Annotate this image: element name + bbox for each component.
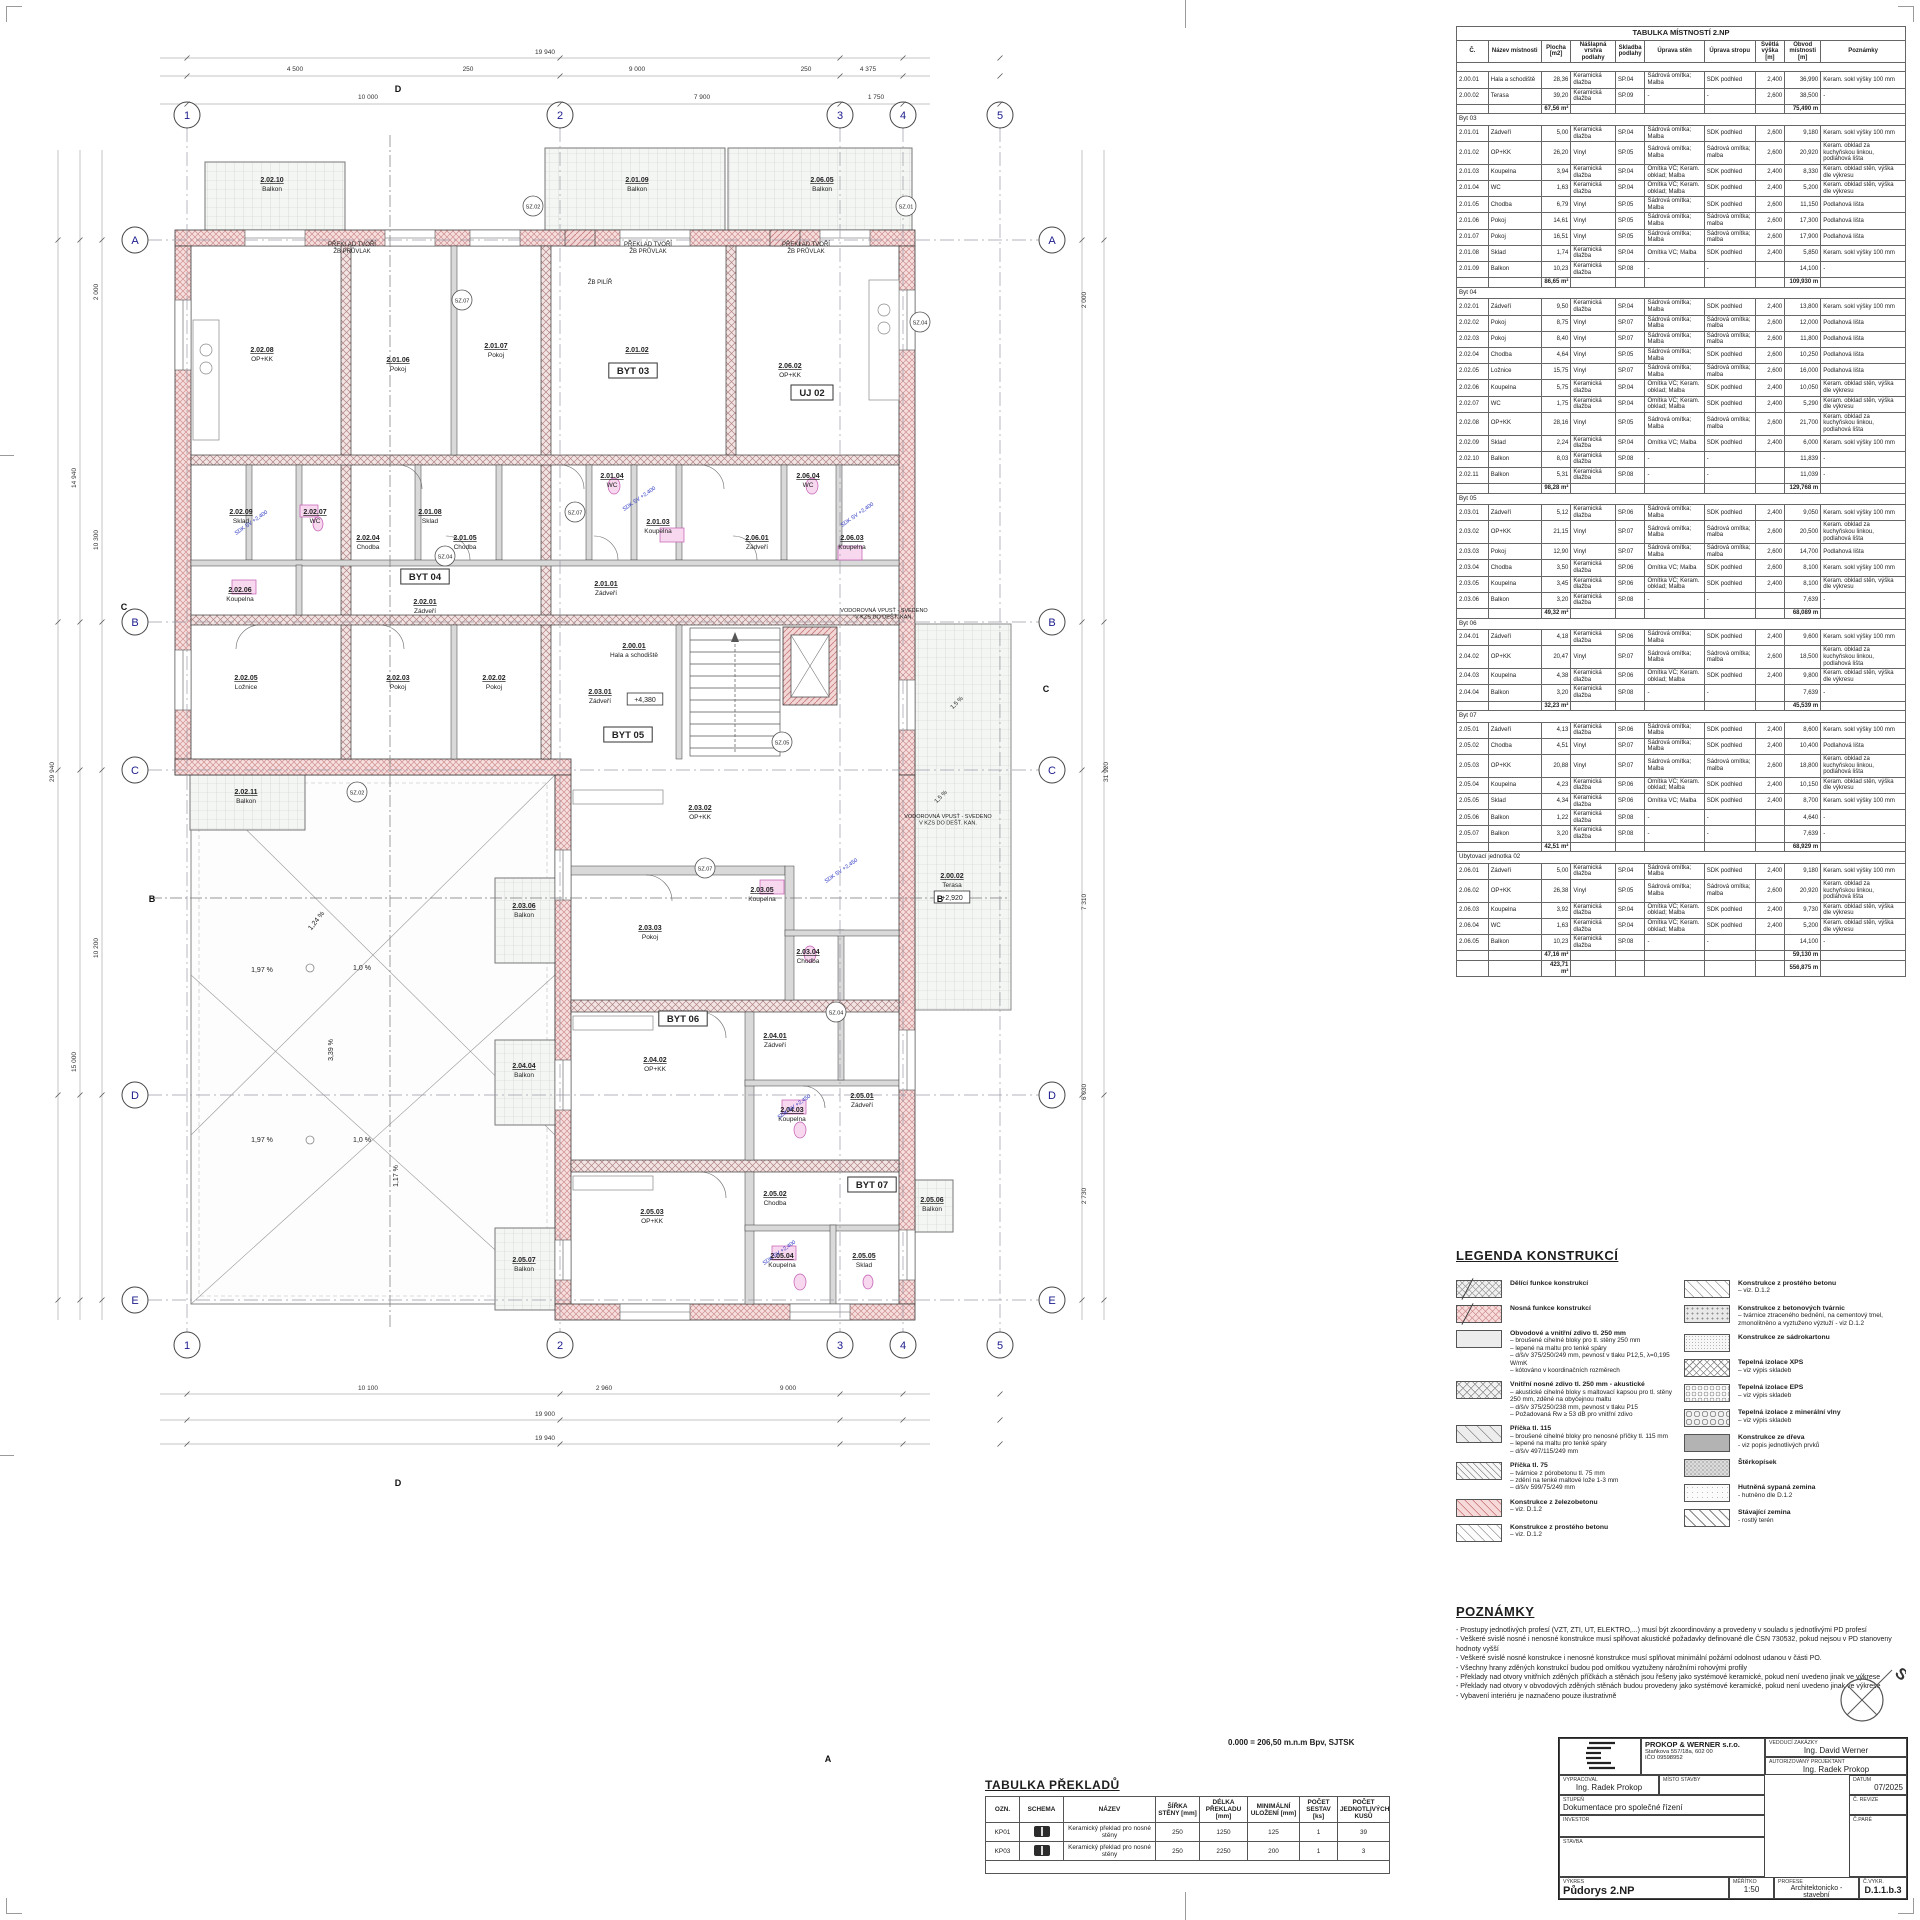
column-header: SCHEMA [1020, 1797, 1064, 1823]
svg-text:6 030: 6 030 [1081, 1083, 1088, 1100]
room-table: TABULKA MÍSTNOSTÍ 2.NP Č.Název místnosti… [1456, 26, 1906, 977]
table-row [1457, 63, 1906, 72]
svg-text:4 375: 4 375 [860, 66, 877, 73]
svg-text:7 900: 7 900 [694, 94, 711, 101]
svg-text:Koupelna: Koupelna [768, 1262, 796, 1269]
svg-text:Pokoj: Pokoj [642, 934, 658, 941]
svg-text:Chodba: Chodba [764, 1200, 787, 1207]
svg-text:Zádveří: Zádveří [746, 544, 768, 551]
svg-text:2.02.10: 2.02.10 [260, 177, 283, 184]
legend-swatch [1684, 1280, 1730, 1298]
svg-text:9 000: 9 000 [780, 1385, 797, 1392]
svg-text:Koupelna: Koupelna [226, 596, 254, 603]
table-row: 2.03.03Pokoj12,90VinylSP.07Sádrová omítk… [1457, 544, 1906, 560]
table-row: 2.04.01Zádveří4,18Keramická dlažbaSP.06S… [1457, 630, 1906, 646]
table-row: 2.02.06Koupelna5,75Keramická dlažbaSP.04… [1457, 380, 1906, 396]
legend-title: LEGENDA KONSTRUKCÍ [1456, 1248, 1618, 1263]
svg-text:2.04.01: 2.04.01 [763, 1033, 786, 1040]
legend-text: Dělící funkce konstrukcí [1510, 1280, 1588, 1298]
svg-text:B: B [131, 617, 138, 629]
svg-text:2.02.07: 2.02.07 [303, 509, 326, 516]
svg-text:Zádveří: Zádveří [595, 590, 617, 597]
svg-text:5: 5 [997, 110, 1003, 122]
svg-text:2.03.05: 2.03.05 [750, 887, 773, 894]
legend-text: Stávající zemina- rostlý terén [1738, 1509, 1791, 1527]
svg-text:D: D [131, 1090, 139, 1102]
table-row: 2.01.02OP+KK26,20VinylSP.05Sádrová omítk… [1457, 142, 1906, 165]
svg-text:2.02.11: 2.02.11 [235, 789, 258, 796]
svg-text:2.05.06: 2.05.06 [920, 1197, 943, 1204]
legend-item: Štěrkopísek [1684, 1459, 1906, 1477]
table-row: 2.04.04Balkon3,20Keramická dlažbaSP.08--… [1457, 685, 1906, 701]
svg-text:Zádveří: Zádveří [589, 698, 611, 705]
drawing-sheet: 1122334455AABBCCDDEE 2.02.10Balkon2.01.0… [0, 0, 1920, 1920]
elevation-note: 0.000 = 206,50 m.n.m Bpv, SJTSK [1228, 1738, 1354, 1747]
field-value: Ing. David Werner [1769, 1746, 1903, 1755]
svg-text:1: 1 [184, 1340, 190, 1352]
north-arrow-icon: S [1822, 1652, 1906, 1736]
svg-text:C: C [1043, 684, 1050, 694]
svg-text:Balkon: Balkon [627, 186, 647, 193]
svg-text:2: 2 [557, 110, 563, 122]
svg-text:PŘEKLAD TVOŘÍ: PŘEKLAD TVOŘÍ [782, 240, 830, 248]
table-row: 47,16 m²59,130 m [1457, 951, 1906, 961]
svg-text:1,0 %: 1,0 % [353, 1137, 371, 1144]
field-value: Dokumentace pro společné řízení [1563, 1803, 1761, 1812]
lintel-schema-icon [1034, 1826, 1050, 1837]
svg-text:2.01.06: 2.01.06 [386, 357, 409, 364]
column-header: Název místnosti [1488, 40, 1541, 63]
svg-text:ŽB PRŮVLAK: ŽB PRŮVLAK [333, 247, 370, 255]
column-header: POČET SESTAV [ks] [1300, 1797, 1338, 1823]
table-row: 2.03.02OP+KK21,15VinylSP.07Sádrová omítk… [1457, 521, 1906, 544]
svg-text:2 730: 2 730 [1081, 1187, 1088, 1204]
field-label: AUTORIZOVANÝ PROJEKTANT [1769, 1759, 1845, 1765]
svg-text:2.05.05: 2.05.05 [852, 1253, 875, 1260]
svg-text:Pokoj: Pokoj [486, 684, 502, 691]
svg-text:B: B [1048, 617, 1055, 629]
svg-text:7 310: 7 310 [1081, 893, 1088, 910]
svg-text:V KZS DO DEŠŤ. KAN.: V KZS DO DEŠŤ. KAN. [855, 612, 913, 620]
legend-item: Vnitřní nosné zdivo tl. 250 mm - akustic… [1456, 1381, 1678, 1418]
table-row: 2.05.02Chodba4,51VinylSP.07Sádrová omítk… [1457, 738, 1906, 754]
svg-text:19 940: 19 940 [535, 1435, 555, 1442]
legend-item: Konstrukce z prostého betonu– viz. D.1.2 [1684, 1280, 1906, 1298]
legend-swatch [1684, 1484, 1730, 1502]
lintel-table-title: TABULKA PŘEKLADŮ [985, 1778, 1120, 1792]
table-row: 2.05.05Sklad4,34Keramická dlažbaSP.06Omí… [1457, 794, 1906, 810]
svg-text:BYT 06: BYT 06 [667, 1014, 699, 1025]
table-row: 2.02.08OP+KK28,16VinylSP.05Sádrová omítk… [1457, 412, 1906, 435]
svg-text:2.01.01: 2.01.01 [594, 581, 617, 588]
legend-text: Konstrukce z železobetonu– viz. D.1.2 [1510, 1499, 1598, 1517]
table-row: 2.01.09Balkon10,23Keramická dlažbaSP.08-… [1457, 262, 1906, 278]
table-row: 2.05.07Balkon3,20Keramická dlažbaSP.08--… [1457, 826, 1906, 842]
svg-text:OP+KK: OP+KK [644, 1066, 667, 1073]
table-row: 2.05.03OP+KK20,88VinylSP.07Sádrová omítk… [1457, 755, 1906, 778]
svg-text:D: D [395, 1478, 402, 1488]
svg-text:Ložnice: Ložnice [235, 684, 258, 691]
svg-text:ŽB PILÍŘ: ŽB PILÍŘ [588, 278, 613, 286]
svg-text:Terasa: Terasa [942, 882, 962, 889]
svg-text:ŽB PRŮVLAK: ŽB PRŮVLAK [629, 247, 666, 255]
svg-text:2.02.03: 2.02.03 [386, 675, 409, 682]
svg-text:B: B [937, 894, 944, 904]
table-row: 2.02.11Balkon5,31Keramická dlažbaSP.08--… [1457, 467, 1906, 483]
column-header: MINIMÁLNÍ ULOŽENÍ [mm] [1248, 1797, 1300, 1823]
svg-text:A: A [825, 1754, 832, 1764]
legend-item: Konstrukce ze sádrokartonu [1684, 1334, 1906, 1352]
table-row: 2.00.02Terasa39,20Keramická dlažbaSP.09-… [1457, 88, 1906, 104]
svg-text:Balkon: Balkon [514, 1266, 534, 1273]
svg-text:VODOROVNÁ VPUSŤ - SVEDENO: VODOROVNÁ VPUSŤ - SVEDENO [904, 812, 992, 820]
svg-text:4 500: 4 500 [287, 66, 304, 73]
field-label: Č.PARÉ [1853, 1817, 1872, 1823]
svg-text:31 920: 31 920 [1103, 762, 1110, 782]
svg-text:2.05.03: 2.05.03 [640, 1209, 663, 1216]
legend-text: Nosná funkce konstrukcí [1510, 1305, 1591, 1323]
column-header: Skladba podlahy [1615, 40, 1645, 63]
legend-swatch [1684, 1409, 1730, 1427]
legend-item: Hutněná sypaná zemina- hutněno dle D.1.2 [1684, 1484, 1906, 1502]
svg-text:WC: WC [310, 518, 321, 525]
table-row: KP01Keramický překlad pro nosné stěny250… [986, 1823, 1390, 1842]
table-row: 2.01.06Pokoj14,61VinylSP.05Sádrová omítk… [1457, 213, 1906, 229]
svg-text:OP+KK: OP+KK [779, 372, 802, 379]
svg-text:1,97 %: 1,97 % [251, 967, 273, 974]
svg-text:Hala a schodiště: Hala a schodiště [610, 652, 658, 659]
legend-swatch [1684, 1459, 1730, 1477]
svg-text:Pokoj: Pokoj [390, 684, 406, 691]
legend-text: Tepelná izolace z minerální vlny– viz vý… [1738, 1409, 1841, 1427]
svg-text:4: 4 [900, 1340, 906, 1352]
legend-item: Dělící funkce konstrukcí [1456, 1280, 1678, 1298]
svg-text:14 940: 14 940 [71, 468, 78, 488]
svg-text:SDK SV +2,400: SDK SV +2,400 [840, 502, 875, 529]
svg-text:E: E [1048, 1295, 1055, 1307]
svg-text:WC: WC [607, 482, 618, 489]
svg-text:Balkon: Balkon [262, 186, 282, 193]
table-row: 2.01.08Sklad1,74Keramická dlažbaSP.04Omí… [1457, 245, 1906, 261]
table-row: 2.02.02Pokoj8,75VinylSP.07Sádrová omítka… [1457, 315, 1906, 331]
svg-text:29 940: 29 940 [49, 762, 56, 782]
table-row: 42,51 m²68,929 m [1457, 842, 1906, 852]
svg-text:10 300: 10 300 [93, 530, 100, 550]
svg-text:2.01.02: 2.01.02 [625, 347, 648, 354]
legend-swatch [1684, 1384, 1730, 1402]
notes-title: POZNÁMKY [1456, 1604, 1534, 1619]
legend-text: Konstrukce z prostého betonu– viz. D.1.2 [1510, 1524, 1608, 1542]
svg-text:250: 250 [801, 66, 812, 73]
column-header: NÁZEV [1064, 1797, 1156, 1823]
legend-swatch [1684, 1305, 1730, 1323]
column-header: Úprava stěn [1645, 40, 1704, 63]
column-header: ŠÍŘKA STĚNY [mm] [1156, 1797, 1200, 1823]
svg-text:3: 3 [837, 1340, 843, 1352]
svg-text:VODOROVNÁ VPUSŤ - SVEDENO: VODOROVNÁ VPUSŤ - SVEDENO [840, 606, 928, 614]
legend-item: Stávající zemina- rostlý terén [1684, 1509, 1906, 1527]
drawing-title: Půdorys 2.NP [1563, 1885, 1725, 1897]
svg-text:2.02.06: 2.02.06 [228, 587, 251, 594]
svg-text:2.00.02: 2.00.02 [940, 873, 963, 880]
svg-text:SZ.02: SZ.02 [350, 791, 365, 797]
svg-text:OP+KK: OP+KK [641, 1218, 664, 1225]
svg-text:SZ.04: SZ.04 [913, 321, 928, 327]
svg-text:10 100: 10 100 [358, 1385, 378, 1392]
column-header: Světlá výška [m] [1755, 40, 1785, 63]
legend-text: Konstrukce z betonových tvárnic– tvárnic… [1738, 1305, 1906, 1327]
staircase [690, 628, 780, 756]
field-value: Ing. Radek Prokop [1769, 1765, 1903, 1774]
svg-text:2.05.07: 2.05.07 [512, 1257, 535, 1264]
svg-text:SZ.07: SZ.07 [455, 299, 470, 305]
legend-swatch [1456, 1381, 1502, 1399]
table-row: KP03Keramický překlad pro nosné stěny250… [986, 1842, 1390, 1861]
legend-swatch [1684, 1509, 1730, 1527]
table-row: 2.02.05Ložnice15,75VinylSP.07Sádrová omí… [1457, 364, 1906, 380]
table-row: Ubytovací jednotka 02 [1457, 852, 1906, 864]
table-row: Byt 04 [1457, 287, 1906, 299]
svg-text:2.03.01: 2.03.01 [588, 689, 611, 696]
svg-text:10 000: 10 000 [358, 94, 378, 101]
table-row: 2.02.03Pokoj8,40VinylSP.07Sádrová omítka… [1457, 331, 1906, 347]
column-header: Plocha [m2] [1541, 40, 1571, 63]
column-header: DÉLKA PŘEKLADU [mm] [1200, 1797, 1248, 1823]
table-row: 2.05.01Zádveří4,13Keramická dlažbaSP.06S… [1457, 722, 1906, 738]
legend-item: Konstrukce z prostého betonu– viz. D.1.2 [1456, 1524, 1678, 1542]
svg-text:10 200: 10 200 [93, 938, 100, 958]
svg-text:2.06.01: 2.06.01 [745, 535, 768, 542]
svg-text:Zádveří: Zádveří [414, 608, 436, 615]
company-ico: IČO 09598952 [1645, 1755, 1761, 1761]
svg-text:2.02.09: 2.02.09 [229, 509, 252, 516]
scale-value: 1:50 [1733, 1885, 1770, 1894]
table-row: 86,65 m²109,930 m [1457, 278, 1906, 288]
svg-text:2.01.07: 2.01.07 [484, 343, 507, 350]
svg-text:2.02.01: 2.02.01 [413, 599, 436, 606]
table-row: Byt 06 [1457, 618, 1906, 630]
svg-text:SDK SV +2,450: SDK SV +2,450 [824, 858, 859, 885]
svg-text:E: E [131, 1295, 138, 1307]
svg-text:2.03.02: 2.03.02 [688, 805, 711, 812]
svg-text:2.06.05: 2.06.05 [810, 177, 833, 184]
svg-text:Chodba: Chodba [357, 544, 380, 551]
drawing-number: D.1.1.b.3 [1863, 1885, 1903, 1895]
table-row: 2.05.06Balkon1,22Keramická dlažbaSP.08--… [1457, 810, 1906, 826]
svg-text:SZ.07: SZ.07 [698, 867, 713, 873]
company-logo [1583, 1740, 1619, 1772]
legend-swatch [1456, 1330, 1502, 1348]
svg-text:Balkon: Balkon [514, 912, 534, 919]
svg-text:2.01.04: 2.01.04 [600, 473, 623, 480]
legend-text: Tepelná izolace EPS– viz výpis skladeb [1738, 1384, 1803, 1402]
lintel-table: OZN.SCHEMANÁZEVŠÍŘKA STĚNY [mm]DÉLKA PŘE… [985, 1796, 1390, 1874]
svg-text:+4,380: +4,380 [634, 697, 656, 704]
svg-text:1,0 %: 1,0 % [353, 965, 371, 972]
svg-text:2.02.02: 2.02.02 [482, 675, 505, 682]
svg-text:19 900: 19 900 [535, 1411, 555, 1418]
legend-column-left: Dělící funkce konstrukcíNosná funkce kon… [1456, 1280, 1678, 1549]
svg-text:2 960: 2 960 [596, 1385, 613, 1392]
table-row: 49,32 m²68,089 m [1457, 608, 1906, 618]
svg-text:Sklad: Sklad [856, 1262, 873, 1269]
legend-text: Obvodové a vnitřní zdivo tl. 250 mm– bro… [1510, 1330, 1678, 1374]
room-table-header: Č.Název místnostiPlocha [m2]Nášlapná vrs… [1457, 40, 1906, 63]
lintel-schema-icon [1034, 1845, 1050, 1856]
column-header: Č. [1457, 40, 1489, 63]
svg-text:Sklad: Sklad [422, 518, 439, 525]
svg-text:4: 4 [900, 110, 906, 122]
svg-text:BYT 04: BYT 04 [409, 572, 442, 583]
svg-text:Zádveří: Zádveří [851, 1102, 873, 1109]
table-row: 2.04.02OP+KK20,47VinylSP.07Sádrová omítk… [1457, 646, 1906, 669]
column-header: Poznámky [1821, 40, 1906, 63]
svg-text:2 000: 2 000 [1081, 291, 1088, 308]
svg-text:2.01.05: 2.01.05 [453, 535, 476, 542]
floor-plan: 1122334455AABBCCDDEE 2.02.10Balkon2.01.0… [0, 0, 1180, 1920]
svg-text:Pokoj: Pokoj [488, 352, 504, 359]
legend-item: Tepelná izolace z minerální vlny– viz vý… [1684, 1409, 1906, 1427]
table-row: 2.06.03Koupelna3,92Keramická dlažbaSP.04… [1457, 902, 1906, 918]
svg-text:2.03.04: 2.03.04 [796, 949, 819, 956]
svg-text:+2,920: +2,920 [941, 895, 963, 902]
table-row: 32,23 m²45,539 m [1457, 701, 1906, 711]
column-header: Nášlapná vrstva podlahy [1571, 40, 1615, 63]
legend-text: Příčka tl. 115– broušené cihelné bloky p… [1510, 1425, 1668, 1455]
svg-text:Balkon: Balkon [922, 1206, 942, 1213]
legend-text: Konstrukce ze sádrokartonu [1738, 1334, 1830, 1352]
svg-text:2 000: 2 000 [93, 283, 100, 300]
svg-text:C: C [121, 602, 128, 612]
table-row: 2.06.05Balkon10,23Keramická dlažbaSP.08-… [1457, 935, 1906, 951]
column-header: Úprava stropu [1704, 40, 1755, 63]
legend-item: Konstrukce z železobetonu– viz. D.1.2 [1456, 1499, 1678, 1517]
legend-text: Hutněná sypaná zemina- hutněno dle D.1.2 [1738, 1484, 1815, 1502]
svg-text:SDK SV +2,400: SDK SV +2,400 [622, 486, 657, 513]
field-label: DATUM [1853, 1777, 1871, 1783]
svg-text:SZ.01: SZ.01 [899, 205, 914, 211]
svg-text:19 940: 19 940 [535, 49, 555, 56]
svg-text:Koupelna: Koupelna [748, 896, 776, 903]
svg-text:Pokoj: Pokoj [390, 366, 406, 373]
svg-text:2.01.08: 2.01.08 [418, 509, 441, 516]
svg-text:Chodba: Chodba [797, 958, 820, 965]
svg-text:S: S [1891, 1665, 1906, 1685]
svg-text:250: 250 [463, 66, 474, 73]
svg-text:1,17 %: 1,17 % [393, 1165, 400, 1187]
table-row: 2.01.01Zádveří5,00Keramická dlažbaSP.04S… [1457, 125, 1906, 141]
legend-swatch [1684, 1359, 1730, 1377]
column-header: Obvod místnosti [m] [1785, 40, 1821, 63]
svg-text:Zádveří: Zádveří [764, 1042, 786, 1049]
svg-text:Koupelna: Koupelna [838, 544, 866, 551]
column-header: OZN. [986, 1797, 1020, 1823]
table-row: 423,71 m²556,875 m [1457, 960, 1906, 976]
table-row: 2.03.05Koupelna3,45Keramická dlažbaSP.06… [1457, 576, 1906, 592]
table-row: 2.02.10Balkon8,03Keramická dlažbaSP.08--… [1457, 451, 1906, 467]
svg-text:BYT 03: BYT 03 [617, 366, 649, 377]
svg-text:OP+KK: OP+KK [251, 356, 274, 363]
legend-text: Tepelná izolace XPS– viz výpis skladeb [1738, 1359, 1803, 1377]
svg-text:PŘEKLAD TVOŘÍ: PŘEKLAD TVOŘÍ [328, 240, 376, 248]
svg-text:D: D [1048, 1090, 1056, 1102]
title-block: PROKOP & WERNER s.r.o. Staňkova 557/18a,… [1558, 1737, 1908, 1900]
legend-column-right: Konstrukce z prostého betonu– viz. D.1.2… [1684, 1280, 1906, 1534]
legend-swatch [1684, 1434, 1730, 1452]
legend-swatch [1456, 1280, 1502, 1298]
svg-text:C: C [1048, 765, 1056, 777]
table-row: 2.01.04WC1,63Keramická dlažbaSP.04Omítka… [1457, 181, 1906, 197]
svg-text:OP+KK: OP+KK [689, 814, 712, 821]
svg-text:2.02.05: 2.02.05 [234, 675, 257, 682]
svg-text:Koupelna: Koupelna [644, 528, 672, 535]
svg-text:ŽB PRŮVLAK: ŽB PRŮVLAK [787, 247, 824, 255]
legend-item: Konstrukce ze dřeva- viz popis jednotliv… [1684, 1434, 1906, 1452]
field-label: STAVBA [1563, 1839, 1583, 1845]
table-row: 2.03.06Balkon3,20Keramická dlažbaSP.08--… [1457, 592, 1906, 608]
svg-text:WC: WC [803, 482, 814, 489]
svg-text:2.02.04: 2.02.04 [356, 535, 379, 542]
svg-text:2.03.03: 2.03.03 [638, 925, 661, 932]
svg-text:2.06.03: 2.06.03 [840, 535, 863, 542]
table-row: 2.02.04Chodba4,64VinylSP.05Sádrová omítk… [1457, 347, 1906, 363]
svg-text:A: A [1048, 235, 1056, 247]
table-row: 2.02.09Sklad2,24Keramická dlažbaSP.04Omí… [1457, 435, 1906, 451]
table-row: 98,28 m²129,768 m [1457, 484, 1906, 494]
field-label: Č. REVIZE [1853, 1797, 1878, 1803]
note-item: - Prostupy jednotlivých profesí (VZT, ZT… [1456, 1626, 1908, 1635]
elevator [783, 627, 837, 705]
legend-text: Štěrkopísek [1738, 1459, 1777, 1477]
table-row: 2.00.01Hala a schodiště28,36Keramická dl… [1457, 72, 1906, 88]
svg-text:2.01.09: 2.01.09 [625, 177, 648, 184]
table-row: 2.03.04Chodba3,50Keramická dlažbaSP.06Om… [1457, 560, 1906, 576]
table-row: 2.06.04WC1,63Keramická dlažbaSP.04Omítka… [1457, 918, 1906, 934]
svg-text:1: 1 [184, 110, 190, 122]
svg-text:3: 3 [837, 110, 843, 122]
svg-text:Balkon: Balkon [514, 1072, 534, 1079]
svg-text:SZ.02: SZ.02 [526, 205, 541, 211]
svg-text:SZ.04: SZ.04 [438, 555, 453, 561]
legend-item: Obvodové a vnitřní zdivo tl. 250 mm– bro… [1456, 1330, 1678, 1374]
svg-text:C: C [131, 765, 139, 777]
field-label: MÍSTO STAVBY [1663, 1777, 1700, 1783]
table-row: 2.02.07WC1,75Keramická dlažbaSP.04Omítka… [1457, 396, 1906, 412]
svg-text:2.02.08: 2.02.08 [250, 347, 273, 354]
svg-text:SZ.05: SZ.05 [775, 741, 790, 747]
legend-swatch [1456, 1524, 1502, 1542]
svg-text:1 750: 1 750 [868, 94, 885, 101]
legend-item: Tepelná izolace XPS– viz výpis skladeb [1684, 1359, 1906, 1377]
svg-text:2.04.04: 2.04.04 [512, 1063, 535, 1070]
legend-swatch [1456, 1499, 1502, 1517]
svg-text:2.01.03: 2.01.03 [646, 519, 669, 526]
field-value: 07/2025 [1853, 1783, 1903, 1792]
svg-text:BYT 05: BYT 05 [612, 730, 645, 741]
svg-text:2.04.02: 2.04.02 [643, 1057, 666, 1064]
legend-item: Nosná funkce konstrukcí [1456, 1305, 1678, 1323]
svg-text:1,97 %: 1,97 % [251, 1137, 273, 1144]
legend-text: Příčka tl. 75– tvárnice z pórobetonu tl.… [1510, 1462, 1618, 1492]
svg-text:2.05.02: 2.05.02 [763, 1191, 786, 1198]
field-value: Architektonicko - stavební [1778, 1885, 1855, 1899]
svg-text:2.05.01: 2.05.01 [850, 1093, 873, 1100]
legend-text: Vnitřní nosné zdivo tl. 250 mm - akustic… [1510, 1381, 1678, 1418]
svg-text:5: 5 [997, 1340, 1003, 1352]
company-name: PROKOP & WERNER s.r.o. [1645, 1740, 1761, 1749]
svg-text:Balkon: Balkon [236, 798, 256, 805]
svg-text:Balkon: Balkon [812, 186, 832, 193]
